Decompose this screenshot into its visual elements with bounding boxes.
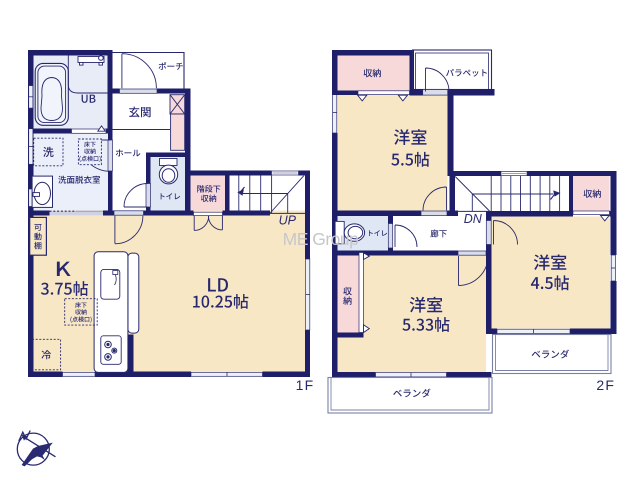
svg-text:DN: DN [464,212,483,226]
svg-text:ME Group: ME Group [283,229,359,249]
svg-text:2F: 2F [596,377,615,393]
svg-text:UP: UP [279,213,297,227]
svg-text:1F: 1F [296,377,315,393]
